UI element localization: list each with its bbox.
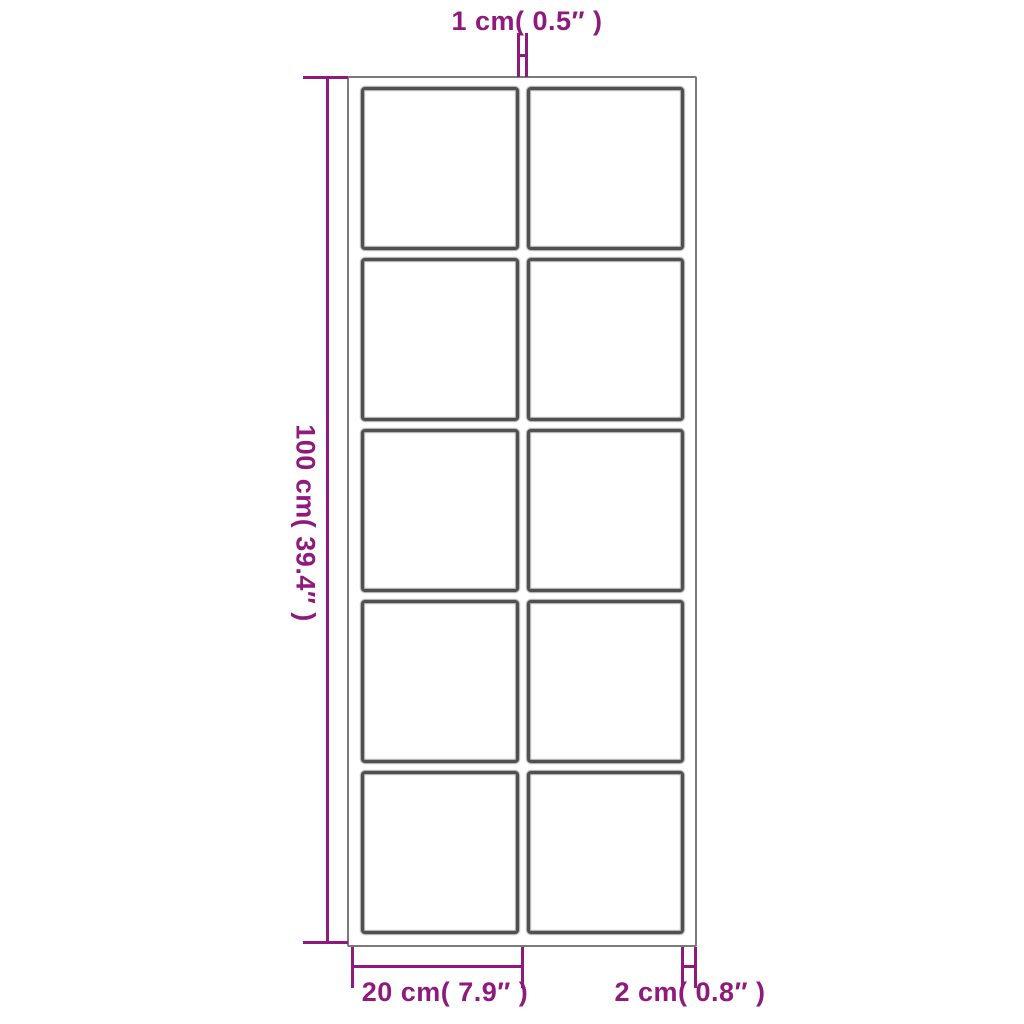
frame-pane [527,429,685,592]
dimension-tick [517,54,528,57]
dimension-label-frame-thickness: 2 cm( 0.8″ ) [615,977,766,1008]
frame-grid [361,87,684,934]
dimension-label-pane-width: 20 cm( 7.9″ ) [362,977,529,1008]
frame-pane [527,600,685,763]
frame-pane [361,87,519,250]
dimension-line-height [326,76,329,944]
frame-pane [527,771,685,934]
dimension-tick [303,76,348,79]
frame-pane [361,258,519,421]
dimension-line-pane-width [351,965,524,968]
dimension-tick [681,965,697,968]
frame-pane [361,600,519,763]
dimension-tick [303,941,348,944]
dimension-diagram: 1 cm( 0.5″ ) 100 cm( 39.4″ ) 20 cm( 7.9″… [0,0,1024,1024]
frame-pane [527,87,685,250]
dimension-tick [351,947,354,988]
dimension-tick [521,947,524,988]
dimension-label-height: 100 cm( 39.4″ ) [290,424,321,622]
frame-pane [361,771,519,934]
frame-pane [527,258,685,421]
frame-pane [361,429,519,592]
